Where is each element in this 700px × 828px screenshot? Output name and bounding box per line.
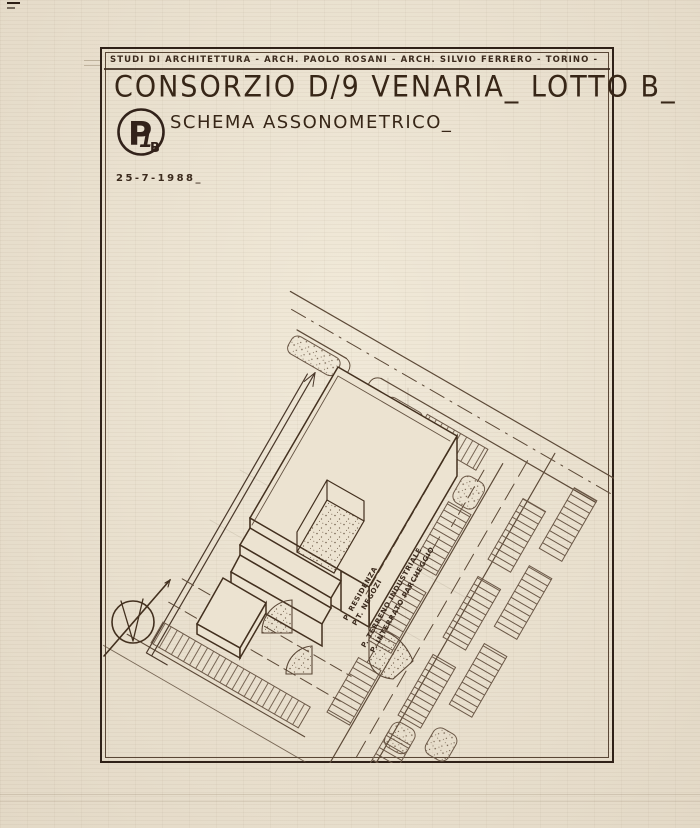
- scan-mark: [7, 7, 15, 9]
- scan-mark: [7, 2, 20, 4]
- guide-line: [0, 801, 700, 802]
- guide-line: [0, 794, 700, 795]
- guide-line: [84, 60, 101, 61]
- scanned-drawing-sheet: { "sheet": { "studio_line": "STUDI DI AR…: [0, 0, 700, 828]
- axonometric-site-drawing: +15.00 +11.00 + 7.00 ±0.00 -4.00: [100, 47, 614, 763]
- building: [197, 367, 457, 658]
- guide-line: [84, 65, 101, 66]
